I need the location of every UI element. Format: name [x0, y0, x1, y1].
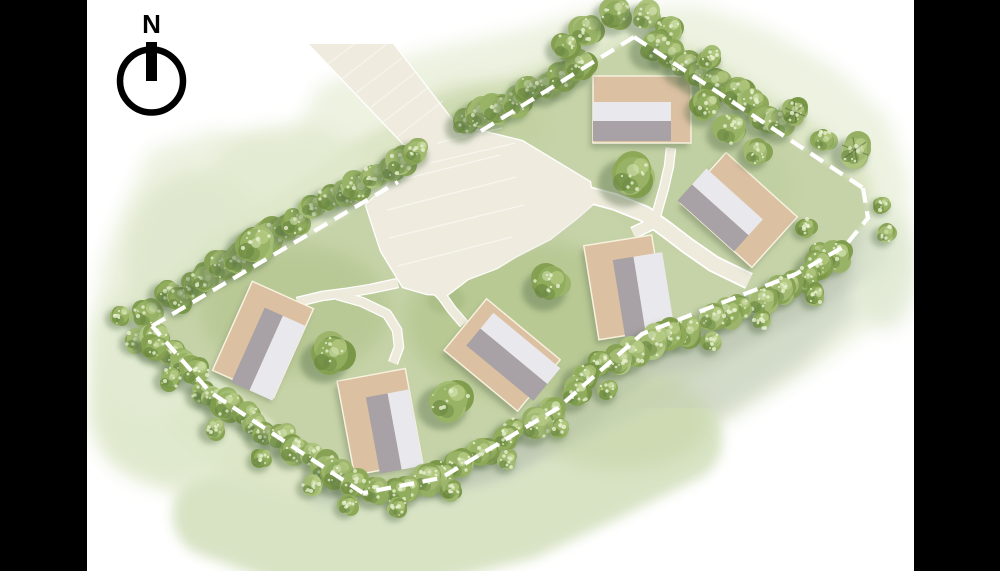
svg-text:N: N: [142, 9, 161, 39]
